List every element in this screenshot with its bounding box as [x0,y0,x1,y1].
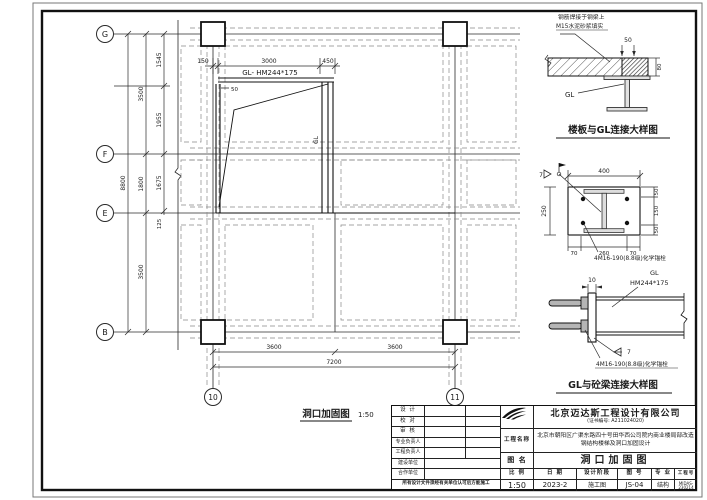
slab-note-2: M15水泥砂浆填实 [556,22,603,30]
project-name-label-cell: 工程名称 [501,429,534,453]
drawing-name-label-cell: 图 名 [501,453,534,469]
scale-value-cell: 1:50 [501,480,534,491]
titleblock-value-cell [425,469,501,480]
titleblock-value-cell [425,417,501,428]
detail-slab-to-gl: 钢筋焊接于钢梁上 M15水泥砂浆填实 50 80 GL 楼板与GL连接大样图 [545,13,670,138]
date-value: 2023-2 [543,482,568,489]
project-name-label: 工程名称 [504,438,530,444]
date-label-cell: 日 期 [534,469,577,480]
number-label-cell: 图 号 [618,469,652,480]
label-client: 建设单位 [398,461,418,466]
label-partner: 合作单位 [398,471,418,476]
plan-columns [201,22,467,344]
scale-label: 比 例 [509,471,525,477]
stage-label-cell: 设计阶段 [577,469,618,480]
titleblock-row-project-lead: 工程负责人 [392,448,425,459]
dim-bottom-7200: 7200 [326,359,341,366]
stage-value: 施工图 [588,483,606,489]
label-checker: 校 对 [400,419,416,425]
grid-bubble-10: 10 [208,393,218,402]
plan-dim-50: 50 [231,87,238,93]
discipline-label: 专 业 [655,471,671,477]
dim-left-1800: 1800 [138,176,145,191]
beam-anchor-note: 4M16-190(8.8级)化学锚栓 [596,360,668,368]
project-name-cell: 北京市朝阳区广渠东路四十号田华西公司院内商业楼局部改造钢结构楼梯及洞口加固设计 [534,429,697,453]
plan-gl-vertical-label: GL [313,135,320,144]
drawing-sheet: GL- HM244*175 GL 50 G F E B 10 11 [0,0,707,500]
plate-dim-right-50a: 50 [654,188,660,195]
note-text: 所有设计文件须经有关单位认可后方能施工 [402,482,489,487]
plate-dim-right-50b: 50 [654,226,660,233]
dim-bottom-3600a: 3600 [266,344,281,351]
title-block: 设 计 校 对 审 核 专业负责人 工程负责人 建设单位 合作单位 所有设计文件… [391,405,696,490]
job-label-cell: 工程号 [675,469,697,480]
scale-value: 1:50 [508,482,526,490]
plan-beam-label: GL- HM244*175 [242,69,297,77]
titleblock-value-cell [425,459,501,470]
label-reviewer: 审 核 [400,429,416,435]
plan-dimension-texts: 150 3000 450 8800 3500 1800 3500 1545 19… [120,52,403,366]
titleblock-row-partner: 合作单位 [392,469,425,480]
job-value: MIDAS-230214 [675,482,697,490]
detail-gl-to-concrete: 10 GL HM244*175 7 4M16-190(8.8级)化学锚栓 GL与… [549,269,687,393]
grid-bubble-G: G [102,30,108,39]
dim-bottom-3600b: 3600 [387,344,402,351]
company-logo-cell [501,406,534,429]
discipline-label-cell: 专 业 [652,469,675,480]
dim-top-450: 450 [322,58,334,65]
dim-top-3000: 3000 [261,58,276,65]
titleblock-value-cell [425,438,501,449]
label-project-lead: 工程负责人 [395,450,420,455]
plate-weld-size: 7 [539,172,543,179]
slab-dim-50: 50 [624,37,632,44]
plate-dim-400: 400 [598,168,610,175]
beam-weld-size: 7 [627,349,631,356]
titleblock-row-designer: 设 计 [392,406,425,417]
label-discipline-lead: 专业负责人 [395,440,420,445]
dim-left-1675: 1675 [156,175,163,190]
job-value-cell: MIDAS-230214 [675,480,697,491]
date-value-cell: 2023-2 [534,480,577,491]
dim-left-1545: 1545 [156,52,163,67]
titleblock-row-discipline-lead: 专业负责人 [392,438,425,449]
plan-caption: 洞口加固图 [301,408,350,420]
titleblock-row-client: 建设单位 [392,459,425,470]
stage-value-cell: 施工图 [577,480,618,491]
plan-opening-members [216,78,455,213]
detail-beam-caption: GL与砼梁连接大样图 [568,379,658,391]
drawing-name: 洞口加固图 [581,456,651,466]
dim-left-3500a: 3500 [138,86,145,101]
drawing-name-label: 图 名 [507,457,526,464]
plate-dim-250: 250 [541,205,548,217]
number-value-cell: JS-04 [618,480,652,491]
plate-dim-bottom-70a: 70 [571,251,578,257]
company-logo-icon [501,406,527,420]
dim-left-1955: 1955 [156,112,163,127]
detail-anchor-plate: 400 250 50 150 50 70 260 70 7 4M16-190(8… [539,163,666,262]
plan-caption-scale: 1:50 [358,411,374,419]
titleblock-value-cell [425,427,501,438]
grid-bubble-11: 11 [450,393,460,402]
grid-bubble-E: E [102,209,107,218]
titleblock-divider [465,406,466,459]
company-name: 北京迈达斯工程设计有限公司 [550,410,680,419]
slab-note-1: 钢筋焊接于钢梁上 [558,13,605,21]
project-name: 北京市朝阳区广渠东路四十号田华西公司院内商业楼局部改造钢结构楼梯及洞口加固设计 [536,433,695,449]
dim-top-150: 150 [197,58,209,65]
beam-gl-label: GL [650,269,659,277]
titleblock-value-cell [425,406,501,417]
titleblock-row-checker: 校 对 [392,417,425,428]
drawing-name-cell: 洞口加固图 [534,453,697,469]
company-cert: (证书编号: A211024020) [587,420,644,425]
grid-bubble-F: F [103,150,108,159]
plate-dim-right-150: 150 [654,205,660,216]
scale-label-cell: 比 例 [501,469,534,480]
company-cell: 北京迈达斯工程设计有限公司 (证书编号: A211024020) [534,406,697,429]
stage-label: 设计阶段 [584,471,610,477]
titleblock-row-reviewer: 审 核 [392,427,425,438]
plate-anchor-note: 4M16-190(8.8级)化学锚栓 [594,254,666,262]
slab-gl-label: GL [565,91,574,99]
titleblock-note: 所有设计文件须经有关单位认可后方能施工 [392,480,501,490]
dim-left-125: 125 [157,218,163,229]
grid-bubble-B: B [102,328,108,337]
label-designer: 设 计 [400,408,416,414]
discipline-value-cell: 结构 [652,480,675,491]
beam-size-label: HM244*175 [630,279,669,287]
beam-dim-plate10: 10 [588,277,596,284]
number-value: JS-04 [626,482,644,489]
slab-dim-thickness: 80 [657,63,663,70]
titleblock-value-cell [425,448,501,459]
discipline-value: 结构 [657,483,669,489]
dim-left-8800: 8800 [120,175,127,190]
job-label: 工程号 [678,472,695,477]
dim-left-3500b: 3500 [138,264,145,279]
date-label: 日 期 [547,471,563,477]
detail-slab-caption: 楼板与GL连接大样图 [568,124,658,136]
number-label: 图 号 [627,471,643,477]
